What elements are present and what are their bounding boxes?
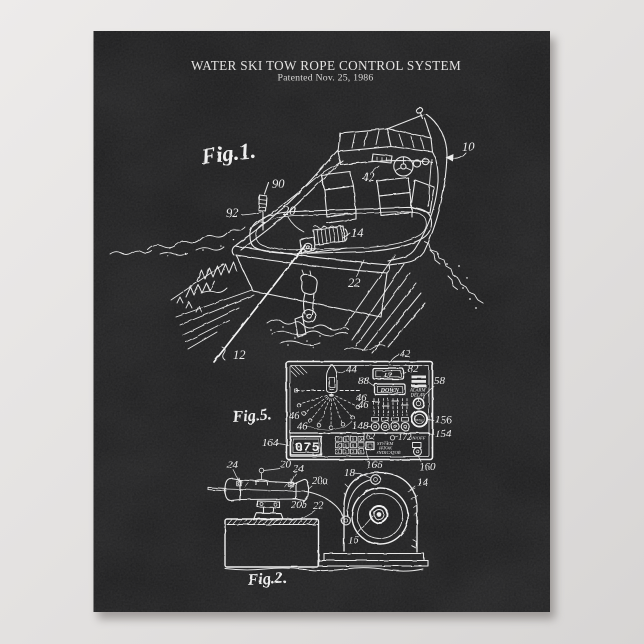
svg-text:.: . [360, 443, 361, 448]
svg-text:154: 154 [435, 428, 452, 440]
svg-text:14: 14 [351, 226, 364, 240]
svg-text:Fig.2.: Fig.2. [246, 569, 287, 589]
svg-text:148: 148 [352, 420, 369, 432]
svg-text:42: 42 [400, 349, 411, 360]
svg-text:20a: 20a [312, 476, 328, 487]
svg-text:WATER SKI TOW ROPE CONTROL SYS: WATER SKI TOW ROPE CONTROL SYSTEM [191, 58, 461, 73]
svg-text:88: 88 [358, 375, 370, 387]
svg-text:12: 12 [233, 348, 246, 362]
svg-text:16: 16 [348, 535, 360, 547]
svg-text:14: 14 [417, 477, 429, 489]
svg-text:166: 166 [366, 459, 383, 471]
svg-text:20: 20 [283, 204, 296, 218]
svg-text:DOWN: DOWN [380, 388, 400, 394]
svg-text:42: 42 [362, 170, 375, 184]
svg-text:82: 82 [408, 363, 420, 375]
svg-text:24: 24 [227, 459, 239, 471]
svg-text:92: 92 [226, 206, 239, 220]
svg-text:22: 22 [348, 276, 361, 290]
svg-text:22: 22 [313, 500, 325, 512]
svg-text:E: E [360, 449, 363, 454]
svg-text:46: 46 [289, 411, 300, 422]
svg-text:ON/OFF: ON/OFF [409, 436, 426, 441]
svg-text:90: 90 [272, 177, 285, 191]
svg-text:INDICATOR: INDICATOR [376, 450, 401, 455]
svg-text:RESET: RESET [414, 418, 426, 422]
svg-text:44: 44 [346, 364, 358, 376]
svg-text:160: 160 [419, 461, 436, 473]
svg-text:Fig.5.: Fig.5. [231, 406, 272, 426]
svg-text:46: 46 [297, 422, 308, 433]
svg-text:10: 10 [462, 140, 475, 154]
svg-text:Patented Nov. 25, 1986: Patented Nov. 25, 1986 [277, 73, 373, 84]
svg-text:156: 156 [435, 414, 452, 426]
svg-text:164: 164 [262, 437, 279, 449]
svg-text:24: 24 [293, 463, 305, 475]
svg-text:162: 162 [362, 432, 376, 442]
svg-text:20: 20 [280, 459, 292, 471]
svg-text:075: 075 [295, 440, 320, 455]
svg-text:58: 58 [434, 375, 446, 387]
svg-text:UP: UP [384, 373, 392, 379]
svg-text:46: 46 [358, 400, 369, 411]
